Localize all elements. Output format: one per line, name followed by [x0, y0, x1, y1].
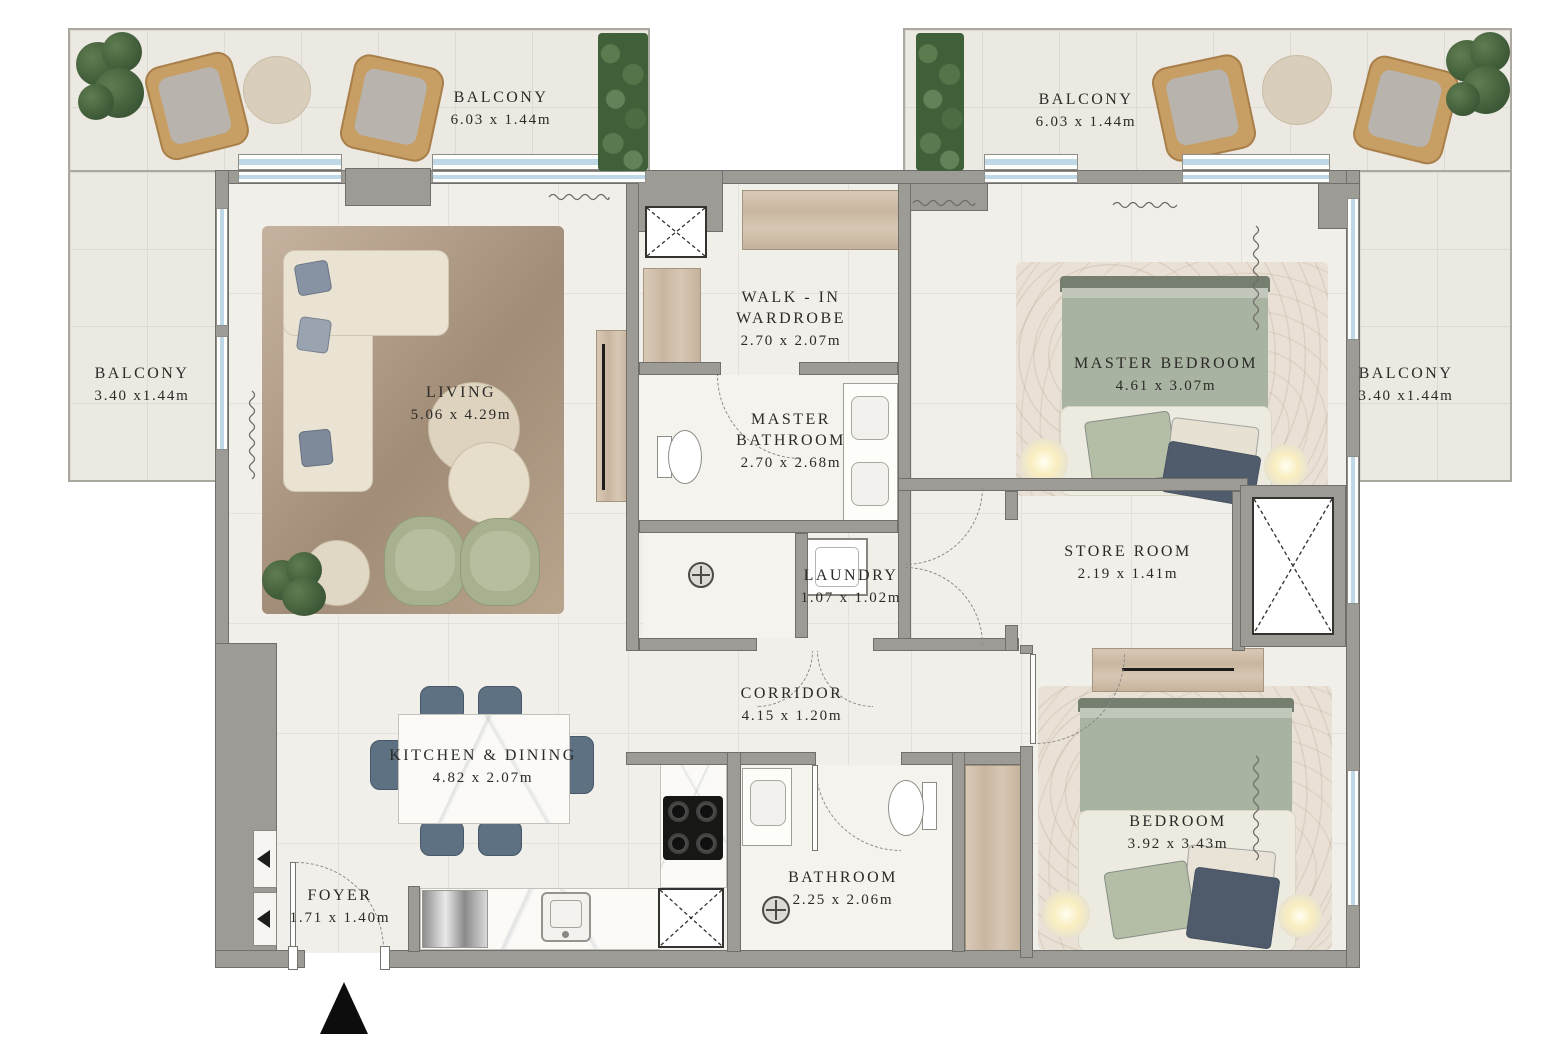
label-living: LIVING 5.06 x 4.29m: [411, 383, 512, 425]
wall: [1020, 645, 1033, 654]
curtain-icon: [246, 390, 258, 485]
plant-icon: [1446, 32, 1514, 124]
label-foyer: FOYER 1.71 x 1.40m: [290, 886, 391, 928]
lounge-armchair: [460, 518, 540, 606]
balcony-right-floor: [1360, 172, 1510, 480]
room-name: MASTER BEDROOM: [1074, 354, 1258, 375]
room-name: BEDROOM: [1128, 812, 1229, 833]
wall-niche: [253, 892, 277, 946]
toilet: [922, 782, 937, 830]
vertical-garden-icon: [598, 33, 648, 171]
room-dims: 4.82 x 2.07m: [389, 769, 577, 789]
room-dims: 1.71 x 1.40m: [290, 909, 391, 929]
floor-plan: BALCONY 6.03 x 1.44m BALCONY 6.03 x 1.44…: [0, 0, 1558, 1052]
wall-niche: [253, 830, 277, 888]
shower-head-icon: [688, 562, 714, 588]
balcony-round-table: [243, 56, 311, 124]
door-frame: [380, 946, 390, 970]
wall: [626, 183, 639, 651]
tv: [602, 344, 605, 490]
window: [984, 171, 1078, 183]
lounge-armchair: [384, 516, 466, 606]
coffee-table: [448, 442, 530, 524]
wall: [408, 886, 420, 952]
service-shaft: [645, 206, 707, 258]
room-dims: 4.61 x 3.07m: [1074, 377, 1258, 397]
window: [1347, 198, 1359, 340]
wall: [345, 168, 431, 206]
room-name: KITCHEN & DINING: [389, 746, 577, 767]
label-balcony-right: BALCONY 3.40 x1.44m: [1358, 364, 1453, 406]
closet-cabinet: [965, 765, 1022, 953]
wall: [799, 362, 898, 375]
balcony-left-floor: [70, 172, 216, 480]
room-name: LAUNDRY: [801, 566, 902, 587]
balcony-door-track: [984, 154, 1078, 170]
wall: [639, 638, 757, 651]
balcony-name: BALCONY: [94, 364, 189, 385]
room-name: MASTER BATHROOM: [711, 410, 871, 452]
sofa-pillow: [298, 428, 334, 467]
wall: [952, 752, 965, 952]
dining-chair: [478, 820, 522, 856]
label-master-bathroom: MASTER BATHROOM 2.70 x 2.68m: [711, 410, 871, 473]
window: [1182, 171, 1330, 183]
wardrobe-cabinet: [742, 190, 904, 250]
plant-icon: [262, 552, 330, 616]
wall: [1005, 491, 1018, 520]
dresser-handle: [1122, 668, 1234, 671]
balcony-name: BALCONY: [1036, 90, 1137, 111]
balcony-dims: 6.03 x 1.44m: [451, 111, 552, 131]
label-kitchen-dining: KITCHEN & DINING 4.82 x 2.07m: [389, 746, 577, 788]
balcony-armchair: [1149, 51, 1259, 164]
bedside-lamp-icon: [1278, 894, 1322, 938]
label-laundry: LAUNDRY 1.07 x 1.02m: [801, 566, 902, 608]
label-store-room: STORE ROOM 2.19 x 1.41m: [1064, 542, 1191, 584]
door-leaf: [1030, 654, 1036, 744]
vertical-garden-icon: [916, 33, 964, 171]
wall: [639, 520, 898, 533]
label-walk-in-wardrobe: WALK - IN WARDROBE 2.70 x 2.07m: [711, 288, 871, 351]
balcony-dims: 3.40 x1.44m: [94, 387, 189, 407]
plant-icon: [76, 32, 148, 124]
sink-basin: [750, 780, 786, 826]
curtain-icon: [912, 196, 976, 208]
label-bathroom: BATHROOM 2.25 x 2.06m: [788, 868, 898, 910]
room-dims: 1.07 x 1.02m: [801, 589, 902, 609]
label-master-bedroom: MASTER BEDROOM 4.61 x 3.07m: [1074, 354, 1258, 396]
room-dims: 2.25 x 2.06m: [788, 891, 898, 911]
label-balcony-left: BALCONY 3.40 x1.44m: [94, 364, 189, 406]
curtain-icon: [1250, 755, 1262, 865]
sofa-pillow: [293, 259, 332, 296]
balcony-door-track: [238, 154, 342, 170]
balcony-armchair: [337, 51, 447, 164]
balcony-name: BALCONY: [1358, 364, 1453, 385]
shower-floor: [643, 533, 795, 638]
balcony-dims: 6.03 x 1.44m: [1036, 113, 1137, 133]
curtain-icon: [1250, 225, 1262, 335]
door-frame: [288, 946, 298, 970]
label-balcony-top-left: BALCONY 6.03 x 1.44m: [451, 88, 552, 130]
stove: [663, 796, 723, 860]
room-name: WALK - IN WARDROBE: [711, 288, 871, 330]
room-dims: 3.92 x 3.43m: [1128, 835, 1229, 855]
wall: [626, 752, 816, 765]
room-name: STORE ROOM: [1064, 542, 1191, 563]
balcony-round-table: [1262, 55, 1332, 125]
room-dims: 4.15 x 1.20m: [741, 707, 844, 727]
service-shaft: [1252, 497, 1334, 635]
toilet: [668, 430, 702, 484]
wardrobe-cabinet: [643, 268, 701, 364]
label-corridor: CORRIDOR 4.15 x 1.20m: [741, 684, 844, 726]
balcony-name: BALCONY: [451, 88, 552, 109]
wall: [639, 362, 721, 375]
room-dims: 5.06 x 4.29m: [411, 406, 512, 426]
entrance-arrow-icon: [320, 982, 368, 1034]
room-dims: 2.70 x 2.07m: [711, 332, 871, 352]
dining-chair: [420, 820, 464, 856]
kitchen-appliance: [422, 890, 488, 948]
wall: [384, 950, 1360, 968]
kitchen-sink: [541, 892, 591, 942]
curtain-icon: [548, 190, 610, 202]
window: [1347, 456, 1359, 604]
label-balcony-top-right: BALCONY 6.03 x 1.44m: [1036, 90, 1137, 132]
shower-head-icon: [762, 896, 790, 924]
room-name: CORRIDOR: [741, 684, 844, 705]
room-name: FOYER: [290, 886, 391, 907]
window: [432, 171, 646, 183]
wall: [727, 752, 741, 952]
sofa-pillow: [296, 316, 332, 354]
room-dims: 2.70 x 2.68m: [711, 454, 871, 474]
wall: [901, 752, 1032, 765]
bedside-lamp-icon: [1264, 444, 1308, 488]
window: [216, 336, 228, 450]
window: [1347, 770, 1359, 906]
window: [216, 208, 228, 326]
room-name: LIVING: [411, 383, 512, 404]
label-bedroom: BEDROOM 3.92 x 3.43m: [1128, 812, 1229, 854]
balcony-dims: 3.40 x1.44m: [1358, 387, 1453, 407]
door-leaf: [812, 765, 818, 851]
wall: [1020, 746, 1033, 958]
room-name: BATHROOM: [788, 868, 898, 889]
service-shaft: [658, 888, 724, 948]
window: [238, 171, 342, 183]
room-dims: 2.19 x 1.41m: [1064, 565, 1191, 585]
curtain-icon: [1112, 198, 1180, 210]
wall: [1005, 625, 1018, 651]
balcony-door-track: [1182, 154, 1330, 170]
bedside-lamp-icon: [1042, 890, 1090, 938]
